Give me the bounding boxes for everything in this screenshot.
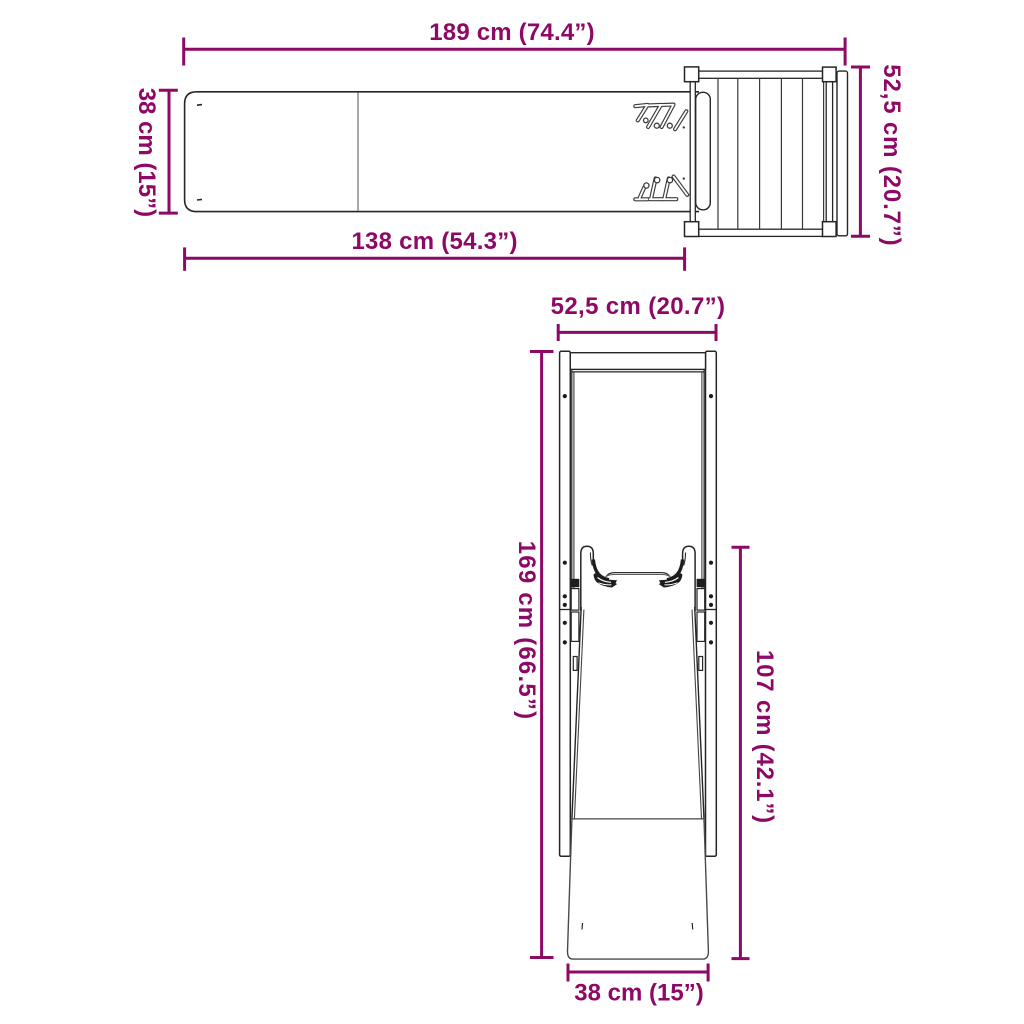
svg-text:38 cm (15”): 38 cm (15”) — [574, 980, 703, 1007]
svg-text:52,5 cm (20.7”): 52,5 cm (20.7”) — [551, 293, 726, 320]
svg-text:38 cm (15”): 38 cm (15”) — [133, 88, 160, 217]
svg-text:52,5 cm (20.7”): 52,5 cm (20.7”) — [878, 64, 905, 246]
svg-text:107 cm (42.1”): 107 cm (42.1”) — [751, 650, 778, 824]
svg-text:138 cm (54.3”): 138 cm (54.3”) — [351, 228, 517, 255]
svg-text:169 cm (66.5”): 169 cm (66.5”) — [513, 541, 540, 721]
svg-text:189 cm (74.4”): 189 cm (74.4”) — [429, 19, 595, 46]
